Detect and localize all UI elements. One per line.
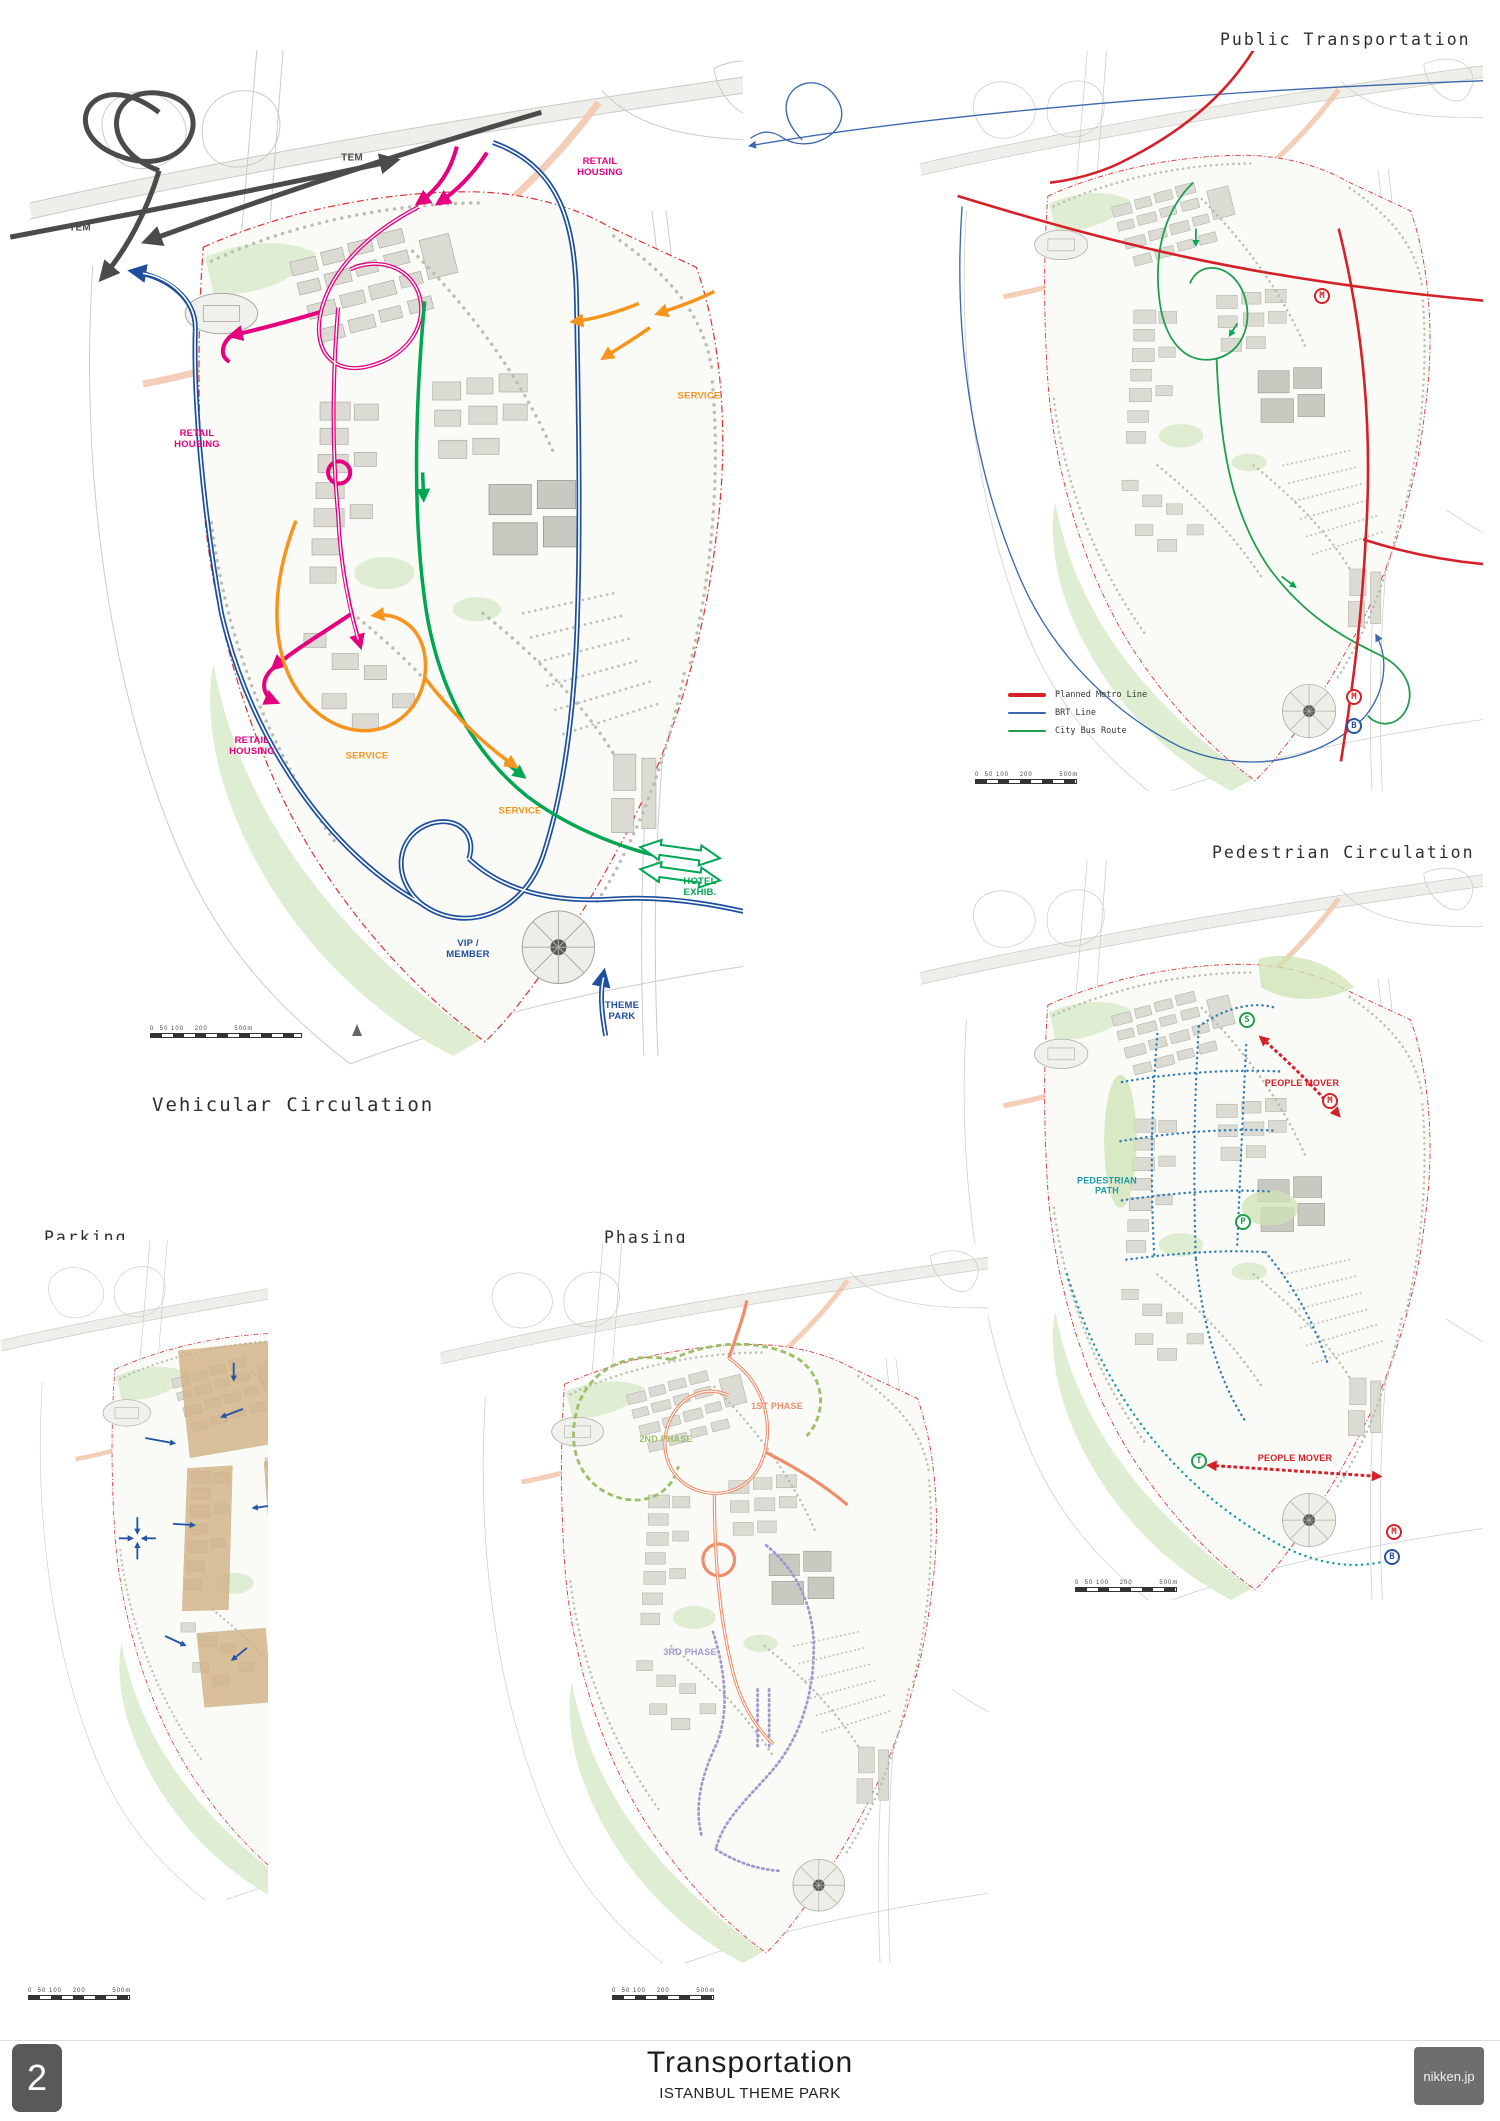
station-badge-m: M <box>1322 1093 1338 1109</box>
vehicular-map-svg <box>0 50 805 1076</box>
station-badge-s: S <box>1239 1012 1255 1028</box>
vehicular-scale-bar: 0 50 100 200 500m <box>150 1026 302 1038</box>
scale-bar-graphic <box>612 1995 714 2000</box>
legend-label: Planned Metro Line <box>1055 690 1147 700</box>
retail-housing-label-lower: RETAIL HOUSING <box>229 736 275 758</box>
retail-housing-label-top: RETAIL HOUSING <box>577 157 623 179</box>
brt-line-swatch <box>1008 712 1046 714</box>
tem-label-right: TEM <box>341 152 363 164</box>
scale-ticks: 0 50 100 200 500m <box>612 1988 715 1994</box>
scale-ticks: 0 50 100 200 500m <box>975 772 1078 778</box>
public-transport-map-svg <box>743 51 1483 791</box>
metro-line-swatch <box>1008 693 1046 697</box>
vehicular-title: Vehicular Circulation <box>152 1094 434 1116</box>
pedestrian-path-label: PEDESTRIAN PATH <box>1077 1176 1137 1197</box>
pedestrian-scale-bar: 0 50 100 200 500m <box>1075 1580 1178 1592</box>
badge-letter: T <box>1196 1456 1201 1466</box>
badge-letter: P <box>1240 1217 1245 1227</box>
scale-ticks: 0 50 100 200 500m <box>28 1988 131 1994</box>
station-badge-m2: M <box>1386 1524 1402 1540</box>
scale-bar-graphic <box>1075 1587 1177 1592</box>
brt-station-badge: B <box>1346 718 1362 734</box>
station-badge-t: T <box>1191 1453 1207 1469</box>
bus-line-swatch <box>1008 730 1046 733</box>
legend-item-metro: Planned Metro Line <box>1008 686 1147 704</box>
sheet-title: Transportation <box>0 2046 1500 2080</box>
badge-letter: B <box>1389 1552 1394 1562</box>
hotel-exhib-label: HOTEL EXHIB. <box>683 877 716 899</box>
parking-scale-bar: 0 50 100 200 500m <box>28 1988 131 2000</box>
scale-bar-graphic <box>150 1033 302 1038</box>
metro-station-badge: M <box>1346 689 1362 705</box>
public-transport-legend: Planned Metro Line BRT Line City Bus Rou… <box>1008 686 1147 740</box>
badge-letter: M <box>1391 1527 1396 1537</box>
nikken-logo: nikken.jp <box>1414 2047 1484 2105</box>
phase2-label: 2ND PHASE <box>639 1434 692 1444</box>
scale-ticks: 0 50 100 200 500m <box>1075 1580 1178 1586</box>
legend-label: BRT Line <box>1055 708 1096 718</box>
tem-label-left: TEM <box>69 222 91 234</box>
badge-letter: S <box>1244 1015 1249 1025</box>
badge-letter: M <box>1351 692 1356 702</box>
metro-station-badge: M <box>1314 288 1330 304</box>
theme-park-label: THEME PARK <box>605 1001 639 1023</box>
scale-ticks: 0 50 100 200 500m <box>150 1026 302 1032</box>
legend-label: City Bus Route <box>1055 726 1127 736</box>
service-label-mid: SERVICE <box>346 752 389 763</box>
retail-housing-label-left: RETAIL HOUSING <box>174 429 220 451</box>
scale-bar-graphic <box>28 1995 130 2000</box>
people-mover-label-bottom: PEOPLE MOVER <box>1258 1453 1332 1463</box>
phasing-map-svg <box>268 1243 988 1963</box>
legend-item-bus: City Bus Route <box>1008 722 1147 740</box>
station-badge-p: P <box>1235 1214 1251 1230</box>
public-transport-title: Public Transportation <box>1220 30 1471 49</box>
sheet-footer: 2 Transportation ISTANBUL THEME PARK nik… <box>0 2040 1500 2121</box>
project-name: ISTANBUL THEME PARK <box>0 2085 1500 2102</box>
public-transport-scale-bar: 0 50 100 200 500m <box>975 772 1078 784</box>
transportation-sheet: TEM TEM RETAIL HOUSING RETAIL HOUSING RE… <box>0 0 1500 2121</box>
scale-bar-graphic <box>975 779 1077 784</box>
legend-item-brt: BRT Line <box>1008 704 1147 722</box>
badge-letter: M <box>1319 291 1324 301</box>
badge-letter: M <box>1327 1096 1332 1106</box>
people-mover-label-top: PEOPLE MOVER <box>1265 1078 1339 1088</box>
phasing-scale-bar: 0 50 100 200 500m <box>612 1988 715 2000</box>
badge-letter: B <box>1351 721 1356 731</box>
north-arrow-icon <box>352 1024 362 1036</box>
station-badge-b: B <box>1384 1549 1400 1565</box>
phase1-label: 1ST PHASE <box>751 1401 803 1411</box>
vip-member-label: VIP / MEMBER <box>446 939 489 961</box>
phase3-label: 3RD PHASE <box>663 1647 716 1657</box>
service-label-right: SERVICE <box>678 392 721 403</box>
service-label-low: SERVICE <box>499 807 542 818</box>
